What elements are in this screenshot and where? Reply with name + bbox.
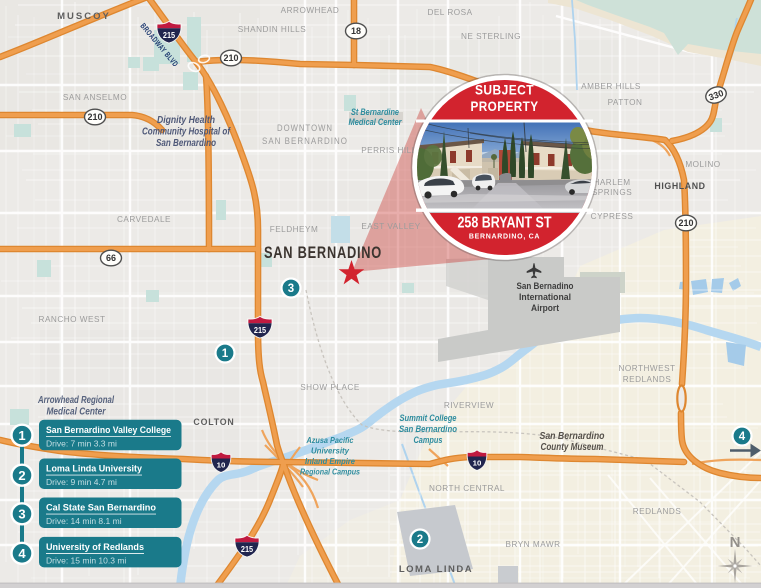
svg-text:San Bernardino: San Bernardino: [540, 431, 605, 442]
svg-text:3: 3: [288, 283, 294, 295]
svg-text:210: 210: [678, 218, 693, 228]
svg-text:Azusa Pacific: Azusa Pacific: [306, 435, 354, 445]
svg-text:REDLANDS: REDLANDS: [623, 375, 672, 384]
svg-text:RANCHO WEST: RANCHO WEST: [39, 315, 106, 324]
svg-text:215: 215: [254, 326, 267, 335]
svg-text:PERRIS HILL: PERRIS HILL: [361, 146, 417, 155]
svg-text:DEL ROSA: DEL ROSA: [427, 8, 472, 17]
svg-text:1: 1: [18, 428, 25, 443]
svg-text:2: 2: [18, 468, 25, 483]
svg-text:Drive: 14 min 8.1 mi: Drive: 14 min 8.1 mi: [46, 516, 122, 526]
svg-text:4: 4: [18, 546, 26, 561]
svg-text:Airport: Airport: [531, 303, 559, 313]
svg-text:FELDHEYM: FELDHEYM: [270, 225, 319, 234]
svg-text:University of Redlands: University of Redlands: [46, 542, 144, 553]
svg-text:Dignity Health: Dignity Health: [157, 115, 215, 126]
svg-text:SUBJECT: SUBJECT: [475, 82, 534, 98]
svg-text:210: 210: [223, 53, 238, 63]
svg-text:MOLINO: MOLINO: [685, 160, 720, 169]
svg-text:Campus: Campus: [414, 435, 443, 446]
svg-text:San Bernardino: San Bernardino: [156, 138, 216, 149]
svg-text:10: 10: [473, 460, 482, 468]
svg-text:LOMA LINDA: LOMA LINDA: [399, 564, 473, 575]
svg-text:Medical Center: Medical Center: [47, 407, 107, 418]
svg-text:215: 215: [163, 31, 176, 40]
svg-text:COLTON: COLTON: [193, 417, 234, 427]
svg-text:210: 210: [87, 112, 102, 122]
svg-text:Community Hospital of: Community Hospital of: [142, 127, 231, 138]
svg-text:SAN BERNARDINO: SAN BERNARDINO: [262, 136, 348, 146]
svg-text:BERNARDINO, CA: BERNARDINO, CA: [469, 234, 540, 241]
svg-text:NE STERLING: NE STERLING: [461, 32, 521, 41]
svg-text:10: 10: [217, 462, 226, 470]
svg-text:CYPRESS: CYPRESS: [591, 212, 634, 221]
svg-text:Arrowhead Regional: Arrowhead Regional: [37, 395, 114, 406]
svg-text:University: University: [311, 446, 350, 456]
svg-text:4: 4: [739, 431, 746, 443]
svg-text:San Bernadino: San Bernadino: [517, 281, 574, 291]
svg-text:CARVEDALE: CARVEDALE: [117, 215, 171, 224]
svg-text:SHOW PLACE: SHOW PLACE: [300, 383, 360, 392]
svg-text:258 BRYANT ST: 258 BRYANT ST: [458, 215, 552, 232]
svg-text:Inland Empire: Inland Empire: [305, 456, 355, 466]
svg-text:NORTH CENTRAL: NORTH CENTRAL: [429, 484, 505, 493]
svg-text:NORTHWEST: NORTHWEST: [618, 364, 675, 373]
svg-text:DOWNTOWN: DOWNTOWN: [277, 123, 333, 133]
svg-text:215: 215: [241, 545, 254, 554]
svg-text:BRYN MAWR: BRYN MAWR: [506, 540, 561, 549]
svg-text:1: 1: [222, 348, 229, 360]
svg-text:RIVERVIEW: RIVERVIEW: [444, 401, 494, 410]
svg-text:Loma Linda University: Loma Linda University: [46, 464, 143, 475]
svg-text:MUSCOY: MUSCOY: [57, 11, 111, 22]
svg-text:County Museum: County Museum: [541, 442, 604, 453]
svg-text:REDLANDS: REDLANDS: [633, 507, 682, 516]
svg-text:Drive: 15 min 10.3 mi: Drive: 15 min 10.3 mi: [46, 555, 126, 565]
svg-text:EAST VALLEY: EAST VALLEY: [361, 222, 420, 231]
svg-text:San Bernardino: San Bernardino: [399, 424, 457, 435]
svg-text:HIGHLAND: HIGHLAND: [654, 181, 705, 191]
svg-text:San Bernardino Valley College: San Bernardino Valley College: [46, 425, 171, 436]
svg-text:HARLEM: HARLEM: [593, 178, 630, 187]
svg-text:SPRINGS: SPRINGS: [592, 188, 632, 197]
svg-text:SAN BERNADINO: SAN BERNADINO: [264, 243, 382, 262]
svg-text:Drive: 7 min 3.3 mi: Drive: 7 min 3.3 mi: [46, 438, 117, 448]
svg-text:Cal State San Bernardino: Cal State San Bernardino: [46, 503, 156, 514]
svg-text:3: 3: [18, 507, 25, 522]
svg-text:PATTON: PATTON: [608, 98, 643, 107]
svg-text:66: 66: [106, 253, 116, 263]
svg-text:International: International: [519, 292, 571, 302]
svg-text:2: 2: [417, 534, 423, 546]
svg-text:ARROWHEAD: ARROWHEAD: [281, 6, 340, 15]
svg-text:18: 18: [351, 26, 361, 36]
svg-text:Medical Center: Medical Center: [349, 117, 403, 128]
svg-text:Drive: 9 min 4.7 mi: Drive: 9 min 4.7 mi: [46, 477, 117, 487]
svg-text:Regional Campus: Regional Campus: [300, 467, 360, 477]
svg-text:PROPERTY: PROPERTY: [471, 98, 539, 114]
svg-text:Summit College: Summit College: [400, 413, 458, 424]
svg-text:N: N: [730, 534, 741, 551]
svg-text:SHANDIN HILLS: SHANDIN HILLS: [238, 25, 306, 34]
svg-text:SAN ANSELMO: SAN ANSELMO: [63, 93, 127, 102]
svg-text:AMBER HILLS: AMBER HILLS: [581, 82, 641, 91]
